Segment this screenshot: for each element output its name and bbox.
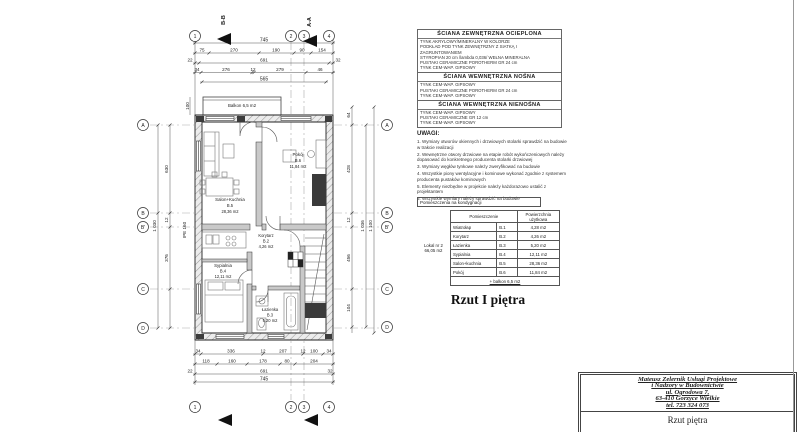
dim-label: 630: [164, 165, 169, 173]
dim-label: 34: [194, 67, 200, 72]
legend-line: PODKŁAD POD TYNK ZEWNĘTRZNY Z SIATKĄ I Z…: [418, 44, 561, 55]
chimney-flues: [288, 252, 303, 267]
room-name-cell: Wiatrołap: [450, 223, 496, 232]
dim-label: 34: [326, 349, 332, 354]
dim-label: 32: [327, 369, 333, 374]
dimension-texts: 745 75 270 190 90 154 22 691 32 34 276 1…: [152, 38, 373, 383]
note-item: 4. Wszystkie piony wentylacyjne i komino…: [417, 171, 569, 182]
room-no-cell: B.2: [497, 232, 517, 241]
grid-row-label: D: [385, 325, 389, 331]
grid-row-label: C: [141, 287, 145, 293]
section-label: A-A: [307, 17, 313, 27]
grid-col-label: 4: [328, 405, 331, 411]
dim-label: 745: [260, 377, 269, 383]
note-item: 2. Wewnętrzne otwory drzwiowe na etapie …: [417, 152, 569, 163]
dim-label: 276: [222, 67, 230, 72]
dim-label: 270: [230, 48, 238, 53]
room-schedule-title: Pomieszczenia na kondygnacji: [417, 197, 541, 207]
unit-cell: Lokal nr 2 66,05 m2: [417, 211, 450, 286]
legend-line: TYNK CEM-WAP. GIPSOWY: [418, 65, 561, 72]
room-number: B.4: [220, 269, 227, 274]
dim-label: 90: [299, 48, 305, 53]
room-name: Łazienka: [262, 307, 279, 312]
dim-label: 204: [310, 359, 318, 364]
table-footer: + balkon 6,5 m2: [450, 277, 559, 286]
legend-section-title: ŚCIANA ZEWNĘTRZNA OCIEPLONA: [418, 30, 561, 39]
room-area: 11,84 m2: [290, 164, 307, 169]
room-area-cell: 5,20 m2: [517, 241, 559, 250]
staircase: [305, 234, 326, 330]
room-area-cell: 12,11 m2: [517, 250, 559, 259]
room-name-cell: Salon+kuchnia: [450, 259, 496, 268]
dim-label: 80: [284, 359, 290, 364]
notes-block: UWAGI: 1. Wymiary otworów okiennych i dr…: [417, 131, 569, 203]
room-number: B.5: [227, 203, 234, 208]
legend-section-title: ŚCIANA WEWNĘTRZNA NIENOŚNA: [418, 101, 561, 110]
dim-label: 46: [317, 67, 323, 72]
grid-col-label: 1: [194, 34, 197, 40]
dim-label: 12: [260, 349, 266, 354]
room-area-cell: 4,26 m2: [517, 232, 559, 241]
sheet-border-line: [793, 0, 794, 432]
dim-label: 279: [276, 67, 284, 72]
dim-label: 207: [279, 349, 287, 354]
dim-label: 104: [346, 304, 351, 312]
title-block: Mateusz Zelernik Usługi Projektowe i Nad…: [578, 372, 797, 432]
dim-label: 12: [300, 349, 306, 354]
room-no-cell: B.3: [497, 241, 517, 250]
dim-label: 178: [259, 359, 267, 364]
room-no-cell: B.4: [497, 250, 517, 259]
dim-label: 100: [310, 349, 318, 354]
note-item: 5. Elementy niezbędne w projekcie należy…: [417, 184, 569, 195]
room-area: 4,26 m2: [259, 244, 275, 249]
note-item: 1. Wymiary otworów okiennych i drzwiowyc…: [417, 139, 569, 150]
legend-section: ŚCIANA ZEWNĘTRZNA OCIEPLONA TYNK AKRYLOW…: [417, 29, 562, 73]
grid-row-label: B': [141, 225, 145, 231]
title-block-inner: Mateusz Zelernik Usługi Projektowe i Nad…: [580, 374, 795, 432]
legend-section: ŚCIANA WEWNĘTRZNA NIENOŚNA TYNK CEM-WAP.…: [417, 100, 562, 128]
dim-label: 1 036: [360, 220, 365, 232]
dim-label: 12: [164, 217, 169, 223]
unit-area: 66,05 m2: [419, 248, 448, 253]
notes-title: UWAGI:: [417, 131, 569, 137]
grid-col-label: 2: [290, 405, 293, 411]
legend-line: TYNK CEM-WAP. GIPSOWY: [418, 120, 561, 127]
room-no-cell: B.5: [497, 259, 517, 268]
grid-col-label: 1: [194, 405, 197, 411]
room-number: B.3: [267, 313, 274, 318]
dim-label: 565: [260, 77, 269, 83]
dim-label: 456: [346, 254, 351, 262]
room-table: Lokal nr 2 66,05 m2 Pomieszczenie Powier…: [417, 210, 560, 286]
dim-label: 691: [260, 58, 268, 63]
room-name: Korytarz: [258, 233, 273, 238]
column-header-room: Pomieszczenie: [450, 211, 517, 223]
dim-label: 160: [228, 359, 236, 364]
balcony-label: Balkon 6,5 m2: [228, 103, 257, 108]
room-area-cell: 28,36 m2: [517, 259, 559, 268]
floor-plan-drawing: Balkon 6,5 m2 Salon+Kuchnia B.5 28,36 m2…: [0, 0, 800, 432]
section-label: B-B: [221, 15, 227, 25]
room-name-cell: Sypialnia: [450, 250, 496, 259]
room-area: 5,20 m2: [263, 318, 279, 323]
drawing-title: Rzut I piętra: [428, 292, 548, 308]
room-area-cell: 4,28 m2: [517, 223, 559, 232]
room-name: Sypialnia: [214, 263, 232, 268]
drawing-sheet: Balkon 6,5 m2 Salon+Kuchnia B.5 28,36 m2…: [0, 0, 800, 432]
dim-label: 34: [195, 349, 201, 354]
dim-label: 336: [227, 349, 235, 354]
room-name-cell: Korytarz: [450, 232, 496, 241]
room-schedule: Pomieszczenia na kondygnacji Lokal nr 2 …: [417, 197, 563, 286]
legend-line: TYNK CEM-WAP. GIPSOWY: [418, 93, 561, 100]
dim-label: 22: [187, 369, 193, 374]
grid-col-label: 3: [303, 405, 306, 411]
room-name: Pokój: [293, 152, 304, 157]
room-number: B.2: [263, 239, 270, 244]
legend-section: ŚCIANA WEWNĘTRZNA NOŚNA TYNK CEM-WAP. GI…: [417, 72, 562, 100]
grid-col-label: 4: [328, 34, 331, 40]
table-header-row: Lokal nr 2 66,05 m2 Pomieszczenie Powier…: [417, 211, 560, 223]
furniture: [200, 132, 326, 330]
grid-col-label: 2: [290, 34, 293, 40]
room-number: B.6: [295, 158, 302, 163]
grid-col-label: 3: [303, 34, 306, 40]
dim-label: 376: [164, 254, 169, 262]
room-area: 12,11 m2: [215, 274, 232, 279]
dim-label: 428: [346, 165, 351, 173]
room-name-cell: Pokój: [450, 268, 496, 277]
grid-row-label: B': [385, 225, 389, 231]
wall-legend: ŚCIANA ZEWNĘTRZNA OCIEPLONA TYNK AKRYLOW…: [417, 30, 562, 128]
dim-label: 745: [260, 38, 269, 44]
note-item: 3. Wymiary węgłów tynkowe należy zweryfi…: [417, 164, 569, 170]
dim-label: 691: [260, 369, 268, 374]
grid-row-label: D: [141, 326, 145, 332]
company-line: tel. 723 324 073: [581, 403, 794, 409]
legend-section-title: ŚCIANA WEWNĘTRZNA NOŚNA: [418, 73, 561, 82]
room-no-cell: B.1: [497, 223, 517, 232]
dim-label: 22: [187, 58, 193, 63]
dim-label: 32: [335, 58, 341, 63]
room-name-cell: Łazienka: [450, 241, 496, 250]
dim-label: 12: [346, 217, 351, 223]
dim-label: 1 100: [368, 220, 373, 232]
dim-label: 118: [202, 359, 210, 364]
room-area: 28,36 m2: [221, 209, 239, 214]
dim-label: 1 030: [152, 220, 157, 232]
room-no-cell: B.6: [497, 268, 517, 277]
dim-label: 154: [318, 48, 326, 53]
column-header-area: Powierzchnia użytkowa: [517, 211, 559, 223]
room-name: Salon+Kuchnia: [215, 197, 245, 202]
dim-label: 190: [272, 48, 280, 53]
dim-label: 12: [250, 67, 256, 72]
dim-label: 64: [346, 112, 351, 118]
dim-label: 100: [185, 102, 190, 110]
dim-label: 75: [199, 48, 205, 53]
title-block-drawing-name: Rzut piętra: [581, 411, 794, 425]
grid-row-label: C: [385, 287, 389, 293]
room-area-cell: 11,84 m2: [517, 268, 559, 277]
grid-bubbles: [138, 31, 393, 413]
beam-label: IPE 160: [182, 221, 187, 238]
